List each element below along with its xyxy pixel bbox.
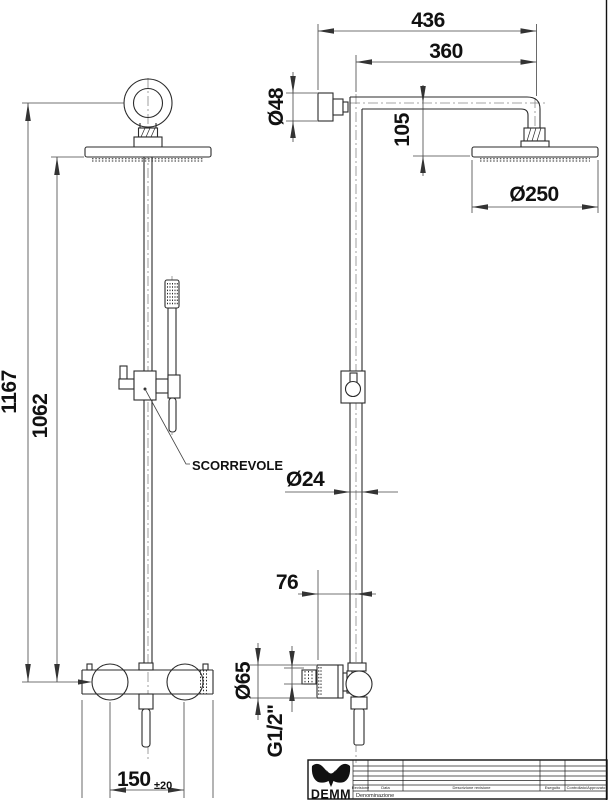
- tb-denominazione: Denominazione: [356, 793, 394, 799]
- tb-col-controllato: Controllato/Approvato: [567, 785, 606, 790]
- slider-label: SCORREVOLE: [192, 458, 283, 473]
- slider-bracket-side: [341, 371, 365, 403]
- technical-drawing: 1167 1062 150 ±20 436 360: [0, 0, 612, 800]
- drawing-sheet: 1167 1062 150 ±20 436 360: [0, 0, 612, 800]
- dim-thread: G1/2": [264, 705, 287, 758]
- tb-col-data: Data: [381, 785, 390, 790]
- brand-name: DEMM: [311, 788, 351, 800]
- dim-inlet-spacing: 150: [117, 768, 151, 791]
- tb-col-descrizione: Descrizione revisione: [452, 785, 491, 790]
- dim-head-diameter: Ø250: [509, 183, 558, 206]
- tb-col-eseguito: Eseguito: [545, 785, 561, 790]
- dim-mixer-diameter: Ø65: [232, 661, 255, 700]
- dim-arm-reach-total: 436: [411, 9, 445, 32]
- dim-inlet-tolerance: ±20: [154, 780, 172, 792]
- dim-arm-reach: 360: [429, 40, 463, 63]
- dim-wall-offset: 76: [276, 571, 298, 594]
- dim-pipe-diameter: Ø24: [286, 468, 325, 491]
- tb-col-revisione: Revisione: [352, 785, 370, 790]
- dim-flange-diameter: Ø48: [265, 87, 288, 126]
- dim-head-drop: 105: [391, 112, 414, 146]
- dim-total-height: 1167: [0, 370, 21, 414]
- dim-column-height: 1062: [29, 394, 52, 439]
